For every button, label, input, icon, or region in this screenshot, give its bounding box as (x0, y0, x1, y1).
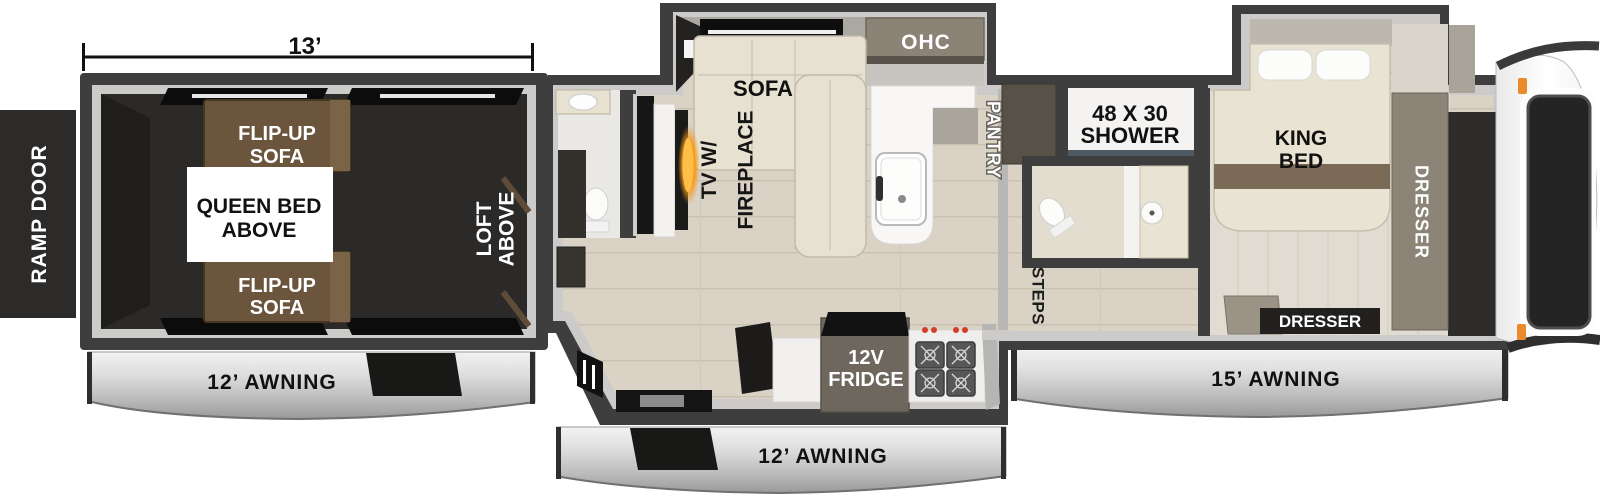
svg-text:DRESSER: DRESSER (1279, 312, 1361, 331)
svg-text:FIREPLACE: FIREPLACE (734, 110, 757, 229)
svg-text:BED: BED (1279, 150, 1323, 173)
svg-text:FRIDGE: FRIDGE (828, 369, 904, 391)
svg-text:SOFA: SOFA (250, 146, 304, 168)
svg-text:PANTRY: PANTRY (983, 101, 1003, 179)
svg-text:ABOVE: ABOVE (222, 219, 297, 242)
svg-text:TV W/: TV W/ (698, 141, 721, 199)
svg-text:OHC: OHC (901, 31, 951, 54)
svg-text:13’: 13’ (288, 33, 321, 60)
svg-text:FLIP-UP: FLIP-UP (238, 275, 316, 297)
svg-text:SOFA: SOFA (250, 297, 304, 319)
svg-text:ABOVE: ABOVE (495, 192, 518, 267)
svg-text:DRESSER: DRESSER (1411, 165, 1431, 259)
svg-text:FLIP-UP: FLIP-UP (238, 123, 316, 145)
svg-text:STEPS: STEPS (1029, 267, 1048, 325)
svg-text:12V: 12V (848, 347, 884, 369)
svg-text:LOFT: LOFT (473, 201, 496, 256)
svg-text:RAMP DOOR: RAMP DOOR (28, 144, 51, 283)
svg-text:12’ AWNING: 12’ AWNING (207, 371, 336, 394)
svg-text:QUEEN BED: QUEEN BED (197, 195, 322, 218)
svg-text:KING: KING (1275, 127, 1328, 150)
svg-text:SHOWER: SHOWER (1081, 123, 1180, 148)
svg-text:SOFA: SOFA (733, 76, 793, 101)
svg-text:12’ AWNING: 12’ AWNING (758, 445, 887, 468)
svg-text:15’ AWNING: 15’ AWNING (1211, 368, 1340, 391)
